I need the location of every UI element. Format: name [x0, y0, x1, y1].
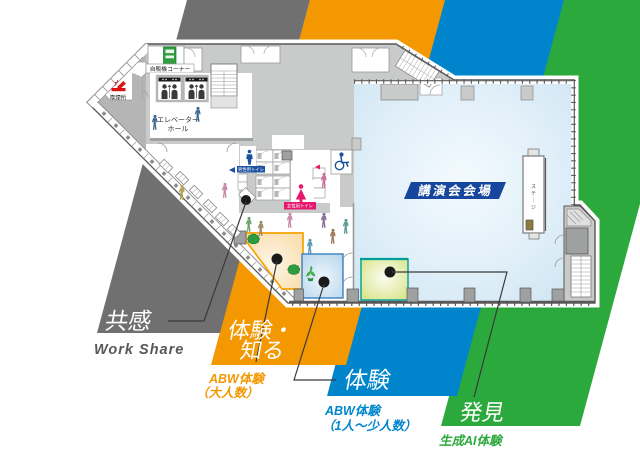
svg-text:ABW体験: ABW体験 [324, 404, 382, 418]
svg-text:知る: 知る [238, 338, 286, 363]
svg-text:エレベーター: エレベーター [157, 115, 199, 124]
svg-text:喫煙所: 喫煙所 [110, 94, 127, 102]
svg-text:自販機コーナー: 自販機コーナー [150, 65, 191, 73]
svg-text:テ: テ [531, 191, 536, 197]
svg-text:Work Share: Work Share [94, 342, 184, 358]
svg-text:（大人数）: （大人数） [196, 385, 259, 400]
svg-text:ス: ス [531, 184, 536, 190]
svg-text:（1人～少人数）: （1人～少人数） [322, 418, 416, 433]
svg-text:男性用トイレ: 男性用トイレ [238, 166, 264, 173]
svg-text:体験: 体験 [342, 367, 393, 393]
svg-text:ホール: ホール [168, 125, 189, 133]
svg-text:ABW体験: ABW体験 [208, 372, 266, 386]
svg-text:｜: ｜ [531, 198, 536, 204]
svg-text:共感: 共感 [103, 308, 154, 334]
svg-text:発見: 発見 [458, 400, 506, 425]
svg-text:女性用トイレ: 女性用トイレ [287, 203, 313, 210]
svg-text:生成AI体験: 生成AI体験 [439, 434, 504, 448]
svg-text:ジ: ジ [531, 205, 536, 211]
svg-text:講演会会場: 講演会会場 [417, 183, 495, 198]
